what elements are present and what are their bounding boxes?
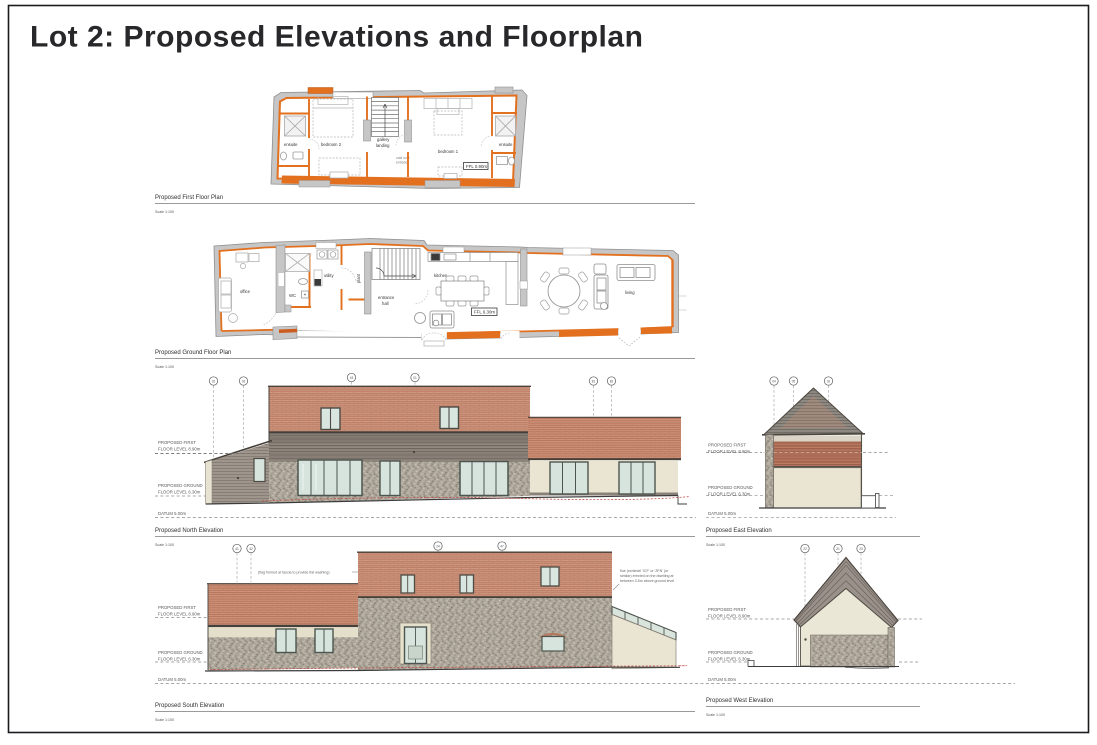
- svg-text:DATUM 5.00m: DATUM 5.00m: [158, 677, 187, 682]
- svg-text:FLOOR LEVEL 6.30m: FLOOR LEVEL 6.30m: [158, 490, 201, 495]
- svg-text:Proposed First Floor Plan: Proposed First Floor Plan: [155, 195, 223, 201]
- svg-text:FLOOR LEVEL 8.90m: FLOOR LEVEL 8.90m: [158, 447, 201, 452]
- svg-text:05: 05: [792, 379, 796, 383]
- svg-text:22: 22: [803, 547, 807, 551]
- svg-text:FFL 6.30m: FFL 6.30m: [474, 310, 495, 315]
- svg-text:ensuite: ensuite: [499, 142, 513, 147]
- svg-text:entrance: entrance: [378, 295, 395, 300]
- svg-text:Proposed East Elevation: Proposed East Elevation: [706, 528, 772, 534]
- svg-text:office: office: [240, 289, 251, 294]
- svg-text:PROPOSED GROUND: PROPOSED GROUND: [708, 485, 753, 490]
- svg-text:47: 47: [500, 544, 504, 548]
- svg-text:hall: hall: [382, 301, 389, 306]
- svg-text:FLOOR LEVEL 6.30m: FLOOR LEVEL 6.30m: [158, 657, 201, 662]
- svg-text:DATUM 5.00m: DATUM 5.00m: [158, 511, 187, 516]
- svg-text:living: living: [625, 290, 635, 295]
- svg-text:21: 21: [836, 547, 840, 551]
- svg-text:Scale 1:100: Scale 1:100: [706, 543, 725, 547]
- svg-text:Scale 1:100: Scale 1:100: [706, 713, 725, 717]
- svg-text:FLOOR LEVEL 6.30m: FLOOR LEVEL 6.30m: [708, 657, 751, 662]
- svg-text:Scale 1:100: Scale 1:100: [155, 210, 174, 214]
- svg-text:DATUM 5.00m: DATUM 5.00m: [708, 511, 737, 516]
- svg-text:Scale 1:100: Scale 1:100: [155, 718, 174, 722]
- svg-text:FFL 0.90m: FFL 0.90m: [466, 164, 487, 169]
- svg-text:utility: utility: [324, 273, 334, 278]
- svg-text:04: 04: [772, 379, 776, 383]
- svg-text:Proposed South Elevation: Proposed South Elevation: [155, 703, 224, 709]
- svg-text:between 3-5m above ground leve: between 3-5m above ground level: [620, 579, 674, 583]
- svg-text:PROPOSED FIRST: PROPOSED FIRST: [158, 605, 196, 610]
- svg-text:landing: landing: [376, 143, 390, 148]
- svg-text:Scale 1:100: Scale 1:100: [155, 543, 174, 547]
- svg-text:23: 23: [859, 547, 863, 551]
- svg-text:(flag formed at fascia to prov: (flag formed at fascia to provide flat w…: [258, 571, 330, 575]
- svg-text:PROPOSED FIRST: PROPOSED FIRST: [158, 440, 196, 445]
- svg-text:FLOOR LEVEL 6.30m: FLOOR LEVEL 6.30m: [708, 492, 751, 497]
- svg-text:24: 24: [436, 544, 440, 548]
- svg-text:PROPOSED FIRST: PROPOSED FIRST: [708, 607, 746, 612]
- svg-text:Proposed West Elevation: Proposed West Elevation: [706, 698, 773, 704]
- svg-text:PROPOSED GROUND: PROPOSED GROUND: [158, 483, 203, 488]
- svg-text:DATUM 5.00m: DATUM 5.00m: [708, 677, 737, 682]
- svg-text:41: 41: [235, 547, 239, 551]
- svg-text:ensuite: ensuite: [284, 142, 298, 147]
- svg-text:FLOOR LEVEL 8.90m: FLOOR LEVEL 8.90m: [708, 614, 751, 619]
- svg-text:01: 01: [413, 376, 417, 380]
- svg-text:Scale 1:100: Scale 1:100: [155, 365, 174, 369]
- svg-text:flue (schiedel 'ICF' or 'ZFN': flue (schiedel 'ICF' or 'ZFN' (or: [620, 569, 669, 573]
- svg-text:03: 03: [242, 379, 246, 383]
- svg-text:bedroom 1: bedroom 1: [438, 149, 459, 154]
- svg-text:bedroom 2: bedroom 2: [321, 142, 342, 147]
- svg-text:02: 02: [827, 379, 831, 383]
- svg-text:PROPOSED GROUND: PROPOSED GROUND: [158, 650, 203, 655]
- svg-text:82: 82: [610, 379, 614, 383]
- svg-text:Proposed North Elevation: Proposed North Elevation: [155, 528, 223, 534]
- svg-text:42: 42: [249, 547, 253, 551]
- svg-text:gallery: gallery: [377, 137, 390, 142]
- svg-text:plant: plant: [356, 273, 361, 283]
- svg-text:02: 02: [212, 379, 216, 383]
- svg-text:WC: WC: [289, 293, 296, 298]
- svg-text:Lot 2: Proposed Elevations and: Lot 2: Proposed Elevations and Floorplan: [30, 21, 643, 54]
- svg-text:FLOOR LEVEL 8.90m: FLOOR LEVEL 8.90m: [708, 449, 751, 454]
- svg-text:81: 81: [592, 379, 596, 383]
- svg-text:similar) erected on the dwelli: similar) erected on the dwelling at: [620, 574, 674, 578]
- svg-text:FLOOR LEVEL 8.90m: FLOOR LEVEL 8.90m: [158, 612, 201, 617]
- svg-text:Proposed Ground Floor Plan: Proposed Ground Floor Plan: [155, 350, 231, 356]
- svg-text:PROPOSED FIRST: PROPOSED FIRST: [708, 443, 746, 448]
- svg-text:43: 43: [350, 376, 354, 380]
- svg-text:PROPOSED GROUND: PROPOSED GROUND: [708, 650, 753, 655]
